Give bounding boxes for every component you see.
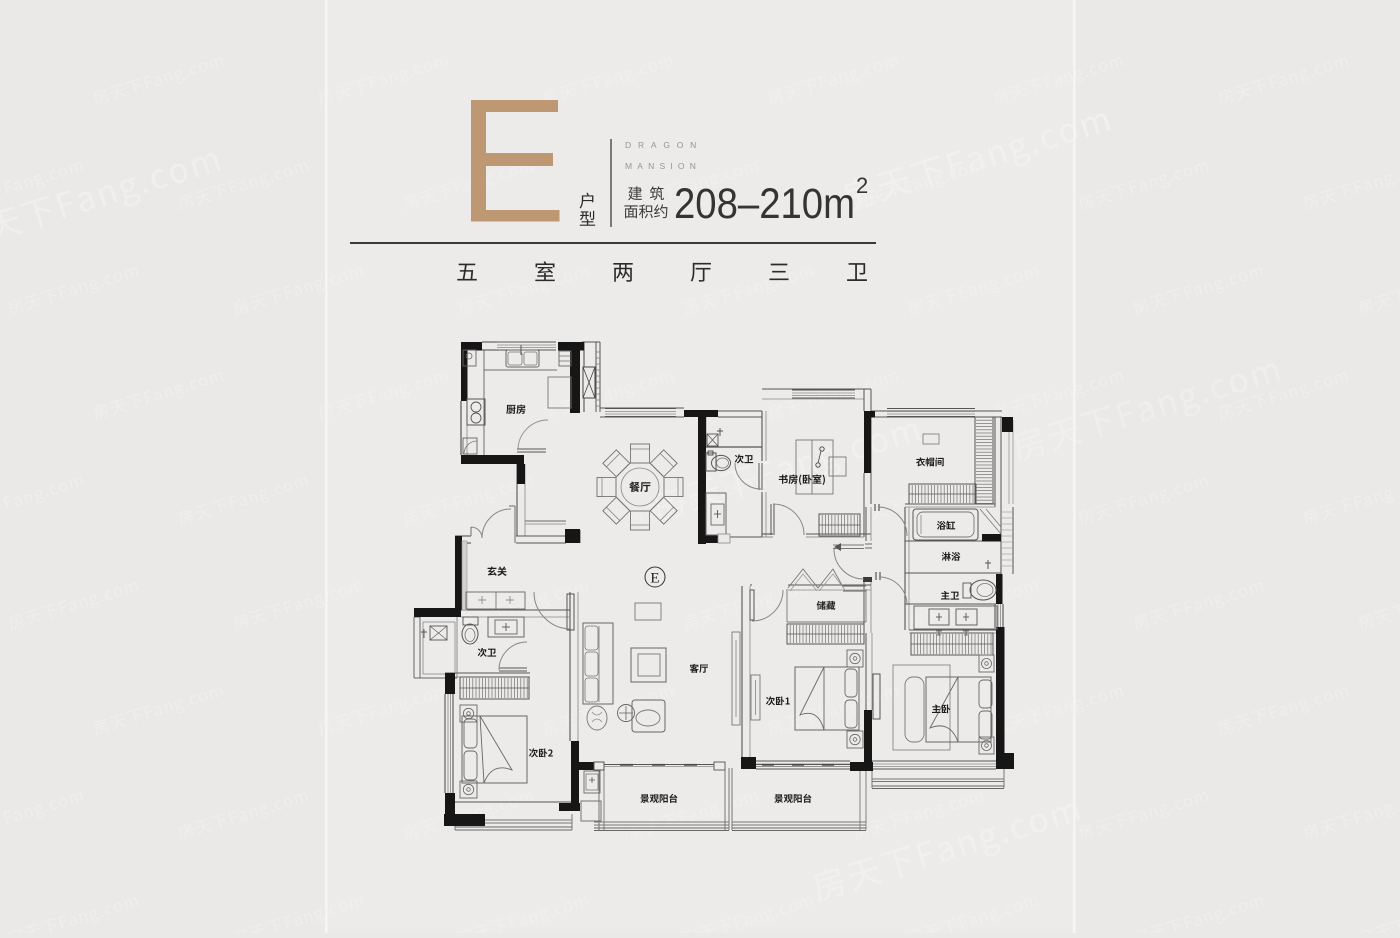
svg-text:MANSION: MANSION <box>625 161 701 171</box>
svg-text:2: 2 <box>856 173 868 198</box>
svg-text:208–210m: 208–210m <box>674 180 855 228</box>
svg-text:DRAGON: DRAGON <box>625 140 703 150</box>
svg-text:E: E <box>650 571 659 587</box>
